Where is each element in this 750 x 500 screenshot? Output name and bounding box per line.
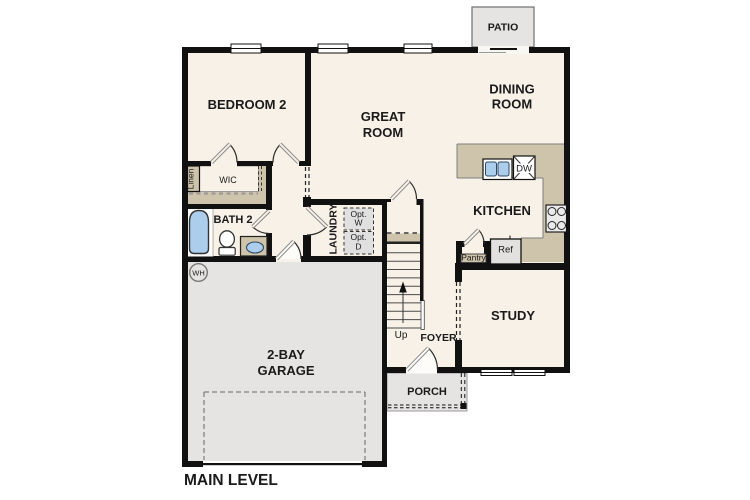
svg-text:WH: WH: [192, 269, 205, 278]
svg-text:MAIN LEVEL: MAIN LEVEL: [184, 472, 278, 489]
svg-text:PORCH: PORCH: [407, 386, 447, 398]
svg-text:Pantry: Pantry: [461, 253, 486, 263]
svg-text:2-BAY: 2-BAY: [267, 347, 305, 362]
svg-text:D: D: [355, 242, 361, 252]
svg-text:DW: DW: [516, 164, 532, 175]
svg-text:ROOM: ROOM: [363, 125, 403, 140]
svg-text:STUDY: STUDY: [491, 308, 535, 323]
svg-text:Ref: Ref: [498, 245, 513, 256]
svg-text:BEDROOM 2: BEDROOM 2: [208, 97, 287, 112]
svg-text:W: W: [354, 218, 362, 228]
svg-text:LAUNDRY: LAUNDRY: [328, 204, 340, 255]
svg-text:ROOM: ROOM: [492, 97, 532, 112]
svg-text:Up: Up: [395, 330, 408, 341]
svg-text:DINING: DINING: [489, 82, 535, 97]
svg-text:PATIO: PATIO: [488, 22, 519, 34]
svg-text:BATH 2: BATH 2: [214, 214, 253, 226]
svg-text:GREAT: GREAT: [361, 109, 406, 124]
svg-text:FOYER: FOYER: [420, 332, 457, 344]
svg-text:WIC: WIC: [219, 175, 237, 185]
svg-text:KITCHEN: KITCHEN: [473, 203, 531, 218]
svg-text:GARAGE: GARAGE: [257, 363, 314, 378]
svg-text:Opt.: Opt.: [350, 232, 366, 242]
